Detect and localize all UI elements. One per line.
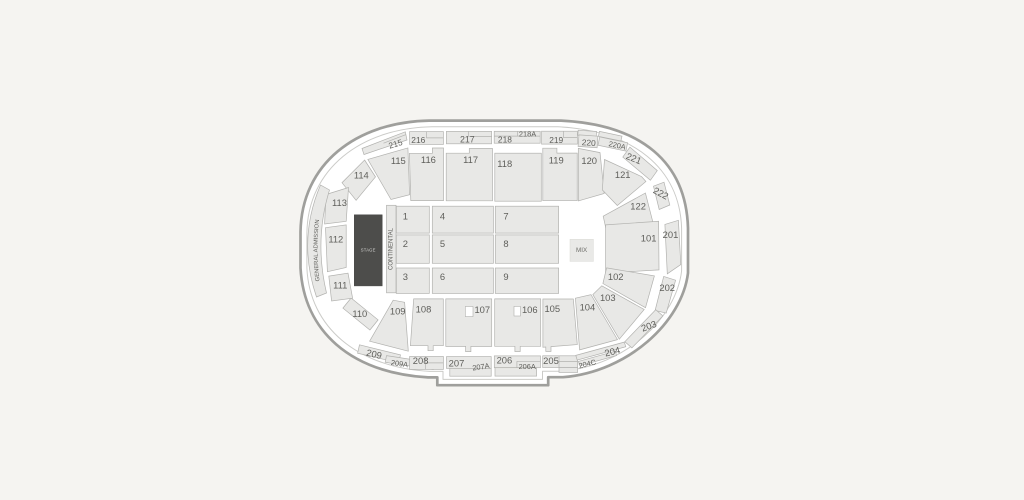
svg-text:102: 102 bbox=[608, 271, 624, 282]
svg-text:111: 111 bbox=[333, 280, 347, 291]
svg-text:108: 108 bbox=[416, 304, 432, 315]
svg-text:8: 8 bbox=[503, 238, 508, 249]
svg-text:217: 217 bbox=[460, 135, 475, 145]
svg-text:220: 220 bbox=[581, 137, 596, 148]
svg-text:207: 207 bbox=[449, 357, 465, 368]
svg-text:MIX: MIX bbox=[576, 247, 588, 254]
svg-text:218: 218 bbox=[498, 135, 512, 145]
svg-text:103: 103 bbox=[600, 292, 616, 303]
svg-text:114: 114 bbox=[354, 170, 369, 181]
svg-text:2: 2 bbox=[403, 238, 408, 249]
svg-text:7: 7 bbox=[503, 210, 508, 221]
svg-text:1: 1 bbox=[403, 210, 408, 221]
svg-text:120: 120 bbox=[581, 155, 597, 166]
svg-text:206: 206 bbox=[497, 354, 513, 365]
svg-text:5: 5 bbox=[440, 238, 445, 249]
svg-text:122: 122 bbox=[630, 201, 646, 212]
svg-text:216: 216 bbox=[411, 135, 425, 145]
svg-text:205: 205 bbox=[543, 355, 559, 366]
svg-text:202: 202 bbox=[659, 282, 675, 293]
svg-text:101: 101 bbox=[641, 232, 657, 243]
svg-text:118: 118 bbox=[497, 158, 512, 169]
svg-text:219: 219 bbox=[549, 135, 563, 145]
svg-text:201: 201 bbox=[663, 229, 679, 240]
svg-text:104: 104 bbox=[580, 302, 596, 313]
svg-text:9: 9 bbox=[503, 271, 508, 282]
svg-text:115: 115 bbox=[391, 155, 406, 166]
svg-text:117: 117 bbox=[463, 154, 478, 165]
svg-text:105: 105 bbox=[544, 303, 560, 314]
svg-text:3: 3 bbox=[403, 271, 408, 282]
svg-text:STAGE: STAGE bbox=[361, 248, 376, 253]
svg-text:112: 112 bbox=[328, 233, 343, 244]
svg-text:113: 113 bbox=[332, 197, 347, 208]
svg-text:110: 110 bbox=[352, 308, 367, 319]
svg-text:CONTINENTAL: CONTINENTAL bbox=[388, 227, 394, 270]
svg-text:107: 107 bbox=[474, 304, 490, 315]
svg-text:4: 4 bbox=[440, 210, 445, 221]
svg-text:106: 106 bbox=[522, 304, 538, 315]
svg-text:116: 116 bbox=[421, 154, 436, 165]
svg-text:121: 121 bbox=[615, 169, 631, 180]
svg-text:208: 208 bbox=[413, 355, 429, 366]
svg-text:6: 6 bbox=[440, 271, 445, 282]
svg-text:109: 109 bbox=[390, 306, 406, 317]
svg-text:218A: 218A bbox=[519, 129, 536, 138]
svg-text:206A: 206A bbox=[519, 362, 536, 371]
svg-text:119: 119 bbox=[549, 155, 564, 166]
